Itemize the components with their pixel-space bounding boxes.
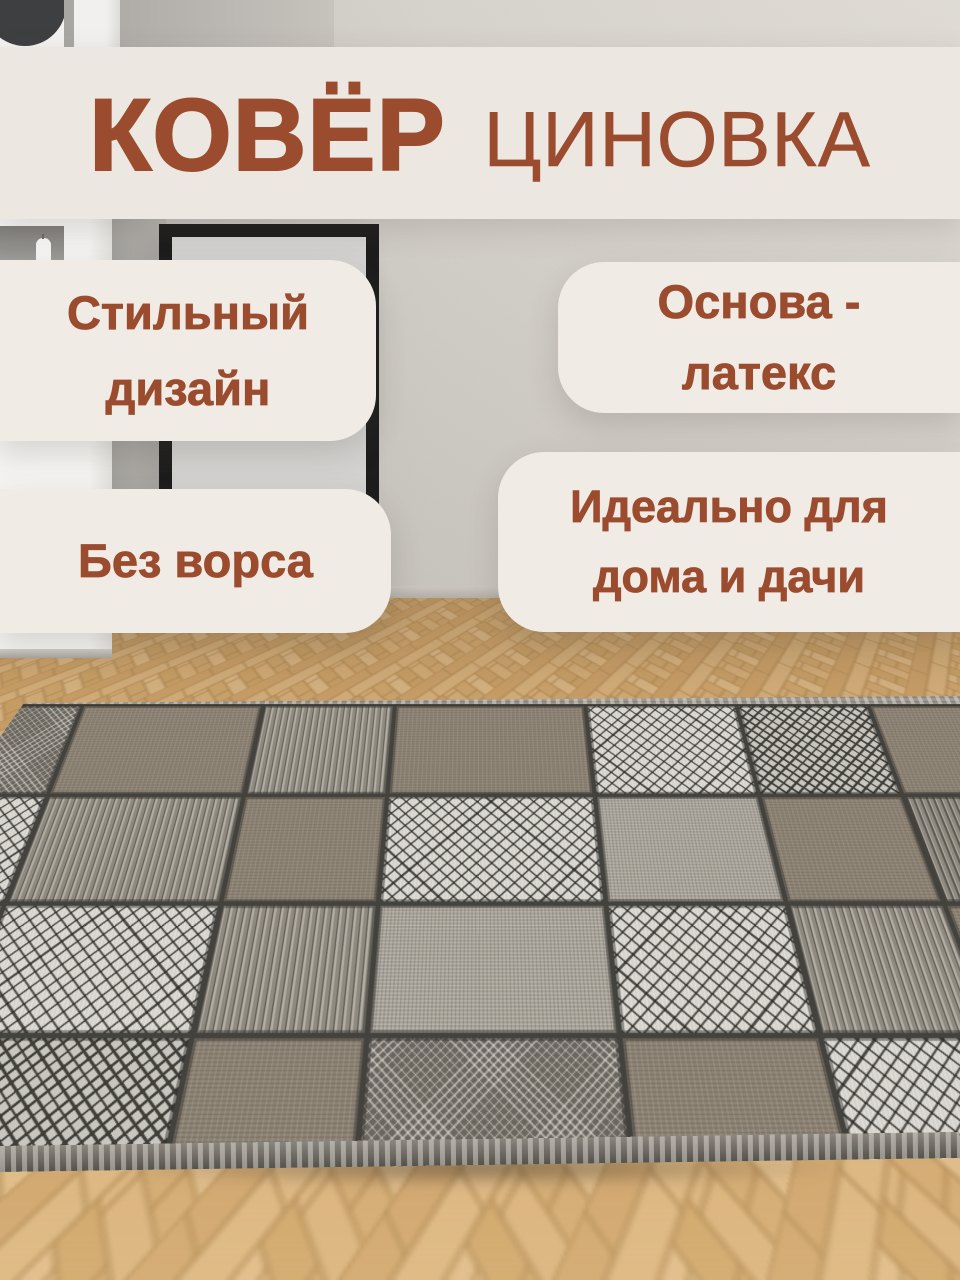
badge-line: дома и дачи — [593, 542, 865, 612]
rug-patch — [224, 797, 385, 901]
cabinet-toe-kick — [0, 649, 112, 658]
frame-shadow-gap — [64, 0, 74, 47]
rug-patch — [587, 706, 756, 793]
rug-patch — [50, 706, 261, 793]
title-secondary: ЦИНОВКА — [484, 94, 871, 185]
rug-patch — [608, 906, 816, 1033]
badge-stylish-design: Стильный дизайн — [0, 260, 376, 441]
rug-patch — [597, 797, 784, 901]
cabinet-side-top — [74, 0, 120, 47]
wall-shadow-top — [116, 0, 334, 48]
circle-artwork — [0, 0, 66, 46]
badge-line: Без ворса — [78, 523, 313, 598]
rug-patch — [196, 906, 376, 1033]
rug — [0, 690, 960, 1190]
product-promo-image: КОВЁР ЦИНОВКА Стильный дизайн Основа - л… — [0, 0, 960, 1280]
badge-latex-base: Основа - латекс — [558, 262, 960, 413]
badge-line: латекс — [682, 338, 836, 409]
badge-line: Основа - — [658, 267, 861, 338]
rug-patch — [789, 906, 960, 1033]
title-banner: КОВЁР ЦИНОВКА — [0, 47, 960, 219]
rug-patch — [246, 706, 392, 793]
rug-patch — [8, 797, 241, 901]
rug-patch — [370, 906, 617, 1033]
framed-picture — [0, 0, 69, 47]
badge-line: дизайн — [106, 351, 271, 426]
rug-patch-grid — [0, 704, 960, 1201]
title-primary: КОВЁР — [89, 77, 446, 194]
rug-patch — [0, 906, 218, 1033]
badge-line: Идеально для — [570, 472, 888, 542]
rug-patch — [380, 797, 602, 901]
badge-home-dacha: Идеально для дома и дачи — [498, 452, 960, 632]
badge-no-pile: Без ворса — [0, 489, 391, 633]
badge-line: Стильный — [67, 275, 309, 350]
rug-patch — [389, 706, 592, 793]
